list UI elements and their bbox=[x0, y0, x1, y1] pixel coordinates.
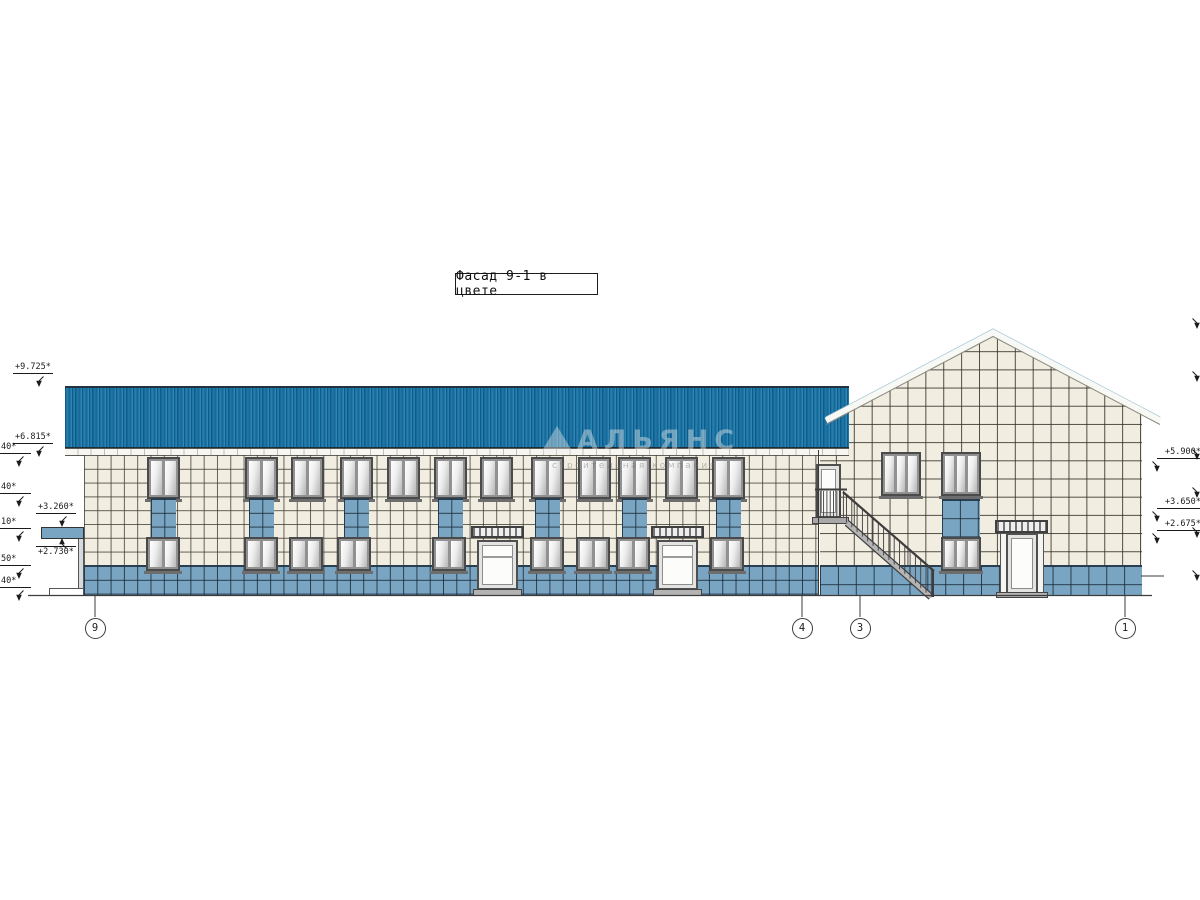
lower-window bbox=[337, 537, 371, 571]
window-sill bbox=[879, 496, 923, 499]
upper-window bbox=[340, 457, 373, 499]
window-pane bbox=[498, 461, 509, 495]
window-pane bbox=[908, 456, 917, 492]
gable-lower-window bbox=[941, 537, 981, 571]
elevation-arrow-icon bbox=[33, 443, 45, 455]
window-pane bbox=[897, 456, 906, 492]
gable-end-wall bbox=[818, 333, 1144, 595]
window-sill bbox=[663, 499, 700, 502]
window-frame bbox=[943, 454, 979, 494]
door-canopy bbox=[471, 526, 524, 538]
window-frame bbox=[434, 539, 464, 569]
elevation-arrow-icon bbox=[13, 453, 25, 465]
window-frame bbox=[532, 539, 562, 569]
upper-window bbox=[387, 457, 420, 499]
door-canopy bbox=[651, 526, 704, 538]
window-sill bbox=[430, 571, 468, 574]
drawing-title: Фасад 9-1 в цвете bbox=[455, 273, 598, 295]
window-pane bbox=[438, 461, 449, 495]
window-pane bbox=[344, 461, 355, 495]
door-threshold bbox=[996, 592, 1048, 598]
elevation-arrow-icon bbox=[1191, 484, 1200, 496]
facade-drawing-canvas: Фасад 9-1 в цвете АЛЬЯНС строительная ко… bbox=[0, 0, 1200, 900]
entrance-door bbox=[1006, 533, 1038, 594]
window-sill bbox=[287, 571, 325, 574]
lower-window bbox=[289, 537, 323, 571]
window-pane bbox=[341, 541, 353, 567]
window-pane bbox=[716, 461, 727, 495]
elevation-arrow-icon bbox=[1151, 508, 1163, 520]
window-frame bbox=[293, 459, 322, 497]
window-pane bbox=[309, 461, 320, 495]
window-pane bbox=[249, 461, 260, 495]
window-pane bbox=[620, 541, 632, 567]
spandrel-panel bbox=[535, 498, 560, 538]
door-side-trim bbox=[1037, 533, 1044, 594]
elevation-arrow-icon bbox=[1191, 524, 1200, 536]
elevation-arrow-icon bbox=[13, 528, 25, 540]
lower-window bbox=[616, 537, 650, 571]
window-pane bbox=[308, 541, 320, 567]
lower-window bbox=[576, 537, 610, 571]
window-frame bbox=[943, 539, 979, 569]
elevation-arrow-icon bbox=[56, 513, 68, 525]
lower-window bbox=[530, 537, 564, 571]
axis-bubble-label: 4 bbox=[799, 622, 805, 634]
lower-window bbox=[146, 537, 180, 571]
door-leaf bbox=[662, 545, 693, 585]
axis-bubble-label: 9 bbox=[92, 622, 98, 634]
window-sill bbox=[289, 499, 326, 502]
entrance-door bbox=[477, 540, 518, 590]
window-sill bbox=[478, 499, 515, 502]
window-sill bbox=[576, 499, 613, 502]
elevation-arrow-icon bbox=[1151, 530, 1163, 542]
lower-window bbox=[432, 537, 466, 571]
window-pane bbox=[580, 541, 592, 567]
window-pane bbox=[635, 541, 647, 567]
upper-window bbox=[434, 457, 467, 499]
window-pane bbox=[595, 541, 607, 567]
upper-window bbox=[147, 457, 180, 499]
window-pane bbox=[484, 461, 495, 495]
spandrel-panel bbox=[151, 498, 176, 538]
window-pane bbox=[356, 541, 368, 567]
window-pane bbox=[151, 461, 162, 495]
window-frame bbox=[482, 459, 511, 497]
window-sill bbox=[528, 571, 566, 574]
door-leaf bbox=[482, 545, 513, 585]
window-pane bbox=[358, 461, 369, 495]
door-leaf bbox=[821, 469, 836, 513]
window-frame bbox=[712, 539, 742, 569]
window-pane bbox=[165, 461, 176, 495]
window-pane bbox=[730, 461, 741, 495]
window-frame bbox=[389, 459, 418, 497]
entrance-door bbox=[657, 540, 698, 590]
window-pane bbox=[534, 541, 546, 567]
window-pane bbox=[549, 541, 561, 567]
axis-bubble-label: 1 bbox=[1122, 622, 1128, 634]
axis-bubble-label: 3 bbox=[857, 622, 863, 634]
watermark-company-subtitle: строительная компания bbox=[552, 461, 717, 471]
window-sill bbox=[939, 571, 983, 574]
window-frame bbox=[246, 539, 276, 569]
elevation-arrow-icon bbox=[56, 534, 68, 546]
door-threshold bbox=[473, 589, 522, 596]
upper-window bbox=[291, 457, 324, 499]
elevation-label: +3.650* bbox=[1157, 498, 1200, 509]
window-pane bbox=[957, 456, 966, 492]
window-frame bbox=[247, 459, 276, 497]
window-sill bbox=[574, 571, 612, 574]
spandrel-panel bbox=[249, 498, 274, 538]
window-pane bbox=[957, 541, 966, 567]
spandrel-panel bbox=[622, 498, 647, 538]
window-frame bbox=[339, 539, 369, 569]
door-canopy bbox=[995, 520, 1048, 533]
window-sill bbox=[335, 571, 373, 574]
elevation-arrow-icon bbox=[33, 373, 45, 385]
door-transom bbox=[482, 556, 513, 558]
window-frame bbox=[714, 459, 743, 497]
window-frame bbox=[149, 459, 178, 497]
window-pane bbox=[295, 461, 306, 495]
window-pane bbox=[293, 541, 305, 567]
window-frame bbox=[436, 459, 465, 497]
elevation-arrow-icon bbox=[1191, 315, 1200, 327]
spandrel-panel bbox=[716, 498, 741, 538]
window-pane bbox=[436, 541, 448, 567]
window-sill bbox=[144, 571, 182, 574]
spandrel-panel bbox=[438, 498, 463, 538]
gable-base-band bbox=[820, 565, 1142, 595]
window-sill bbox=[242, 571, 280, 574]
gable-spandrel-panel bbox=[942, 499, 980, 538]
window-pane bbox=[968, 541, 977, 567]
downpipe bbox=[78, 539, 84, 591]
landing-door bbox=[816, 464, 841, 518]
door-leaf bbox=[1011, 538, 1033, 589]
window-pane bbox=[535, 461, 546, 495]
window-frame bbox=[291, 539, 321, 569]
window-pane bbox=[714, 541, 726, 567]
watermark-company-name: АЛЬЯНС bbox=[577, 425, 740, 456]
lower-window bbox=[244, 537, 278, 571]
window-frame bbox=[578, 539, 608, 569]
window-frame bbox=[148, 539, 178, 569]
window-pane bbox=[150, 541, 162, 567]
elevation-arrow-icon bbox=[13, 493, 25, 505]
lower-window bbox=[710, 537, 744, 571]
elevation-arrow-icon bbox=[1191, 567, 1200, 579]
elevation-arrow-icon bbox=[13, 587, 25, 599]
axis-bubble: 3 bbox=[850, 618, 871, 639]
window-pane bbox=[405, 461, 416, 495]
watermark-logo-icon bbox=[540, 426, 574, 454]
window-sill bbox=[614, 571, 652, 574]
landing-slab bbox=[812, 517, 849, 524]
window-pane bbox=[945, 541, 954, 567]
window-sill bbox=[385, 499, 422, 502]
upper-window bbox=[245, 457, 278, 499]
elevation-arrow-icon bbox=[1191, 368, 1200, 380]
window-pane bbox=[451, 541, 463, 567]
elevation-arrow-icon bbox=[1191, 446, 1200, 458]
elevation-arrow-icon bbox=[1151, 458, 1163, 470]
window-sill bbox=[708, 571, 746, 574]
window-pane bbox=[945, 456, 954, 492]
axis-bubble: 9 bbox=[85, 618, 106, 639]
spandrel-panel bbox=[344, 498, 369, 538]
window-pane bbox=[885, 456, 894, 492]
window-frame bbox=[618, 539, 648, 569]
window-pane bbox=[263, 541, 275, 567]
window-pane bbox=[248, 541, 260, 567]
window-pane bbox=[263, 461, 274, 495]
window-frame bbox=[342, 459, 371, 497]
elevation-marker: +3.650* bbox=[1157, 498, 1200, 509]
axis-bubble: 4 bbox=[792, 618, 813, 639]
gable-upper-window bbox=[941, 452, 981, 496]
upper-window bbox=[480, 457, 513, 499]
gable-upper-window bbox=[881, 452, 921, 496]
window-pane bbox=[452, 461, 463, 495]
axis-bubble: 1 bbox=[1115, 618, 1136, 639]
window-pane bbox=[391, 461, 402, 495]
window-pane bbox=[968, 456, 977, 492]
door-transom bbox=[662, 556, 693, 558]
window-pane bbox=[165, 541, 177, 567]
door-threshold bbox=[653, 589, 702, 596]
window-frame bbox=[883, 454, 919, 494]
window-pane bbox=[729, 541, 741, 567]
entry-step bbox=[49, 588, 84, 596]
